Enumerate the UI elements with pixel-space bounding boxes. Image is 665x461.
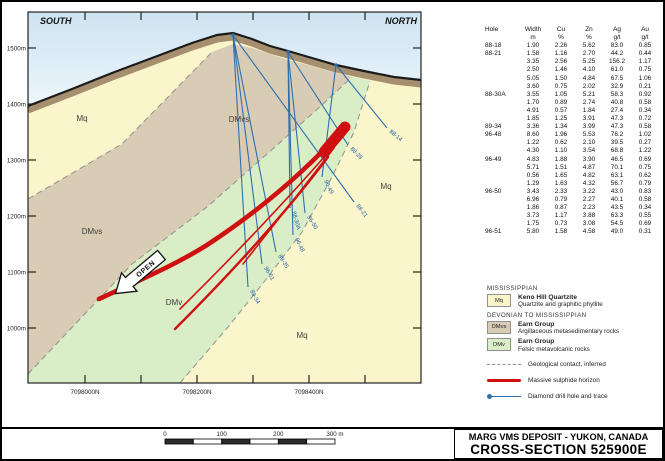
hole-id-cell [485,83,519,91]
value-cell: 70.1 [603,164,631,172]
value-cell: 0.83 [631,188,659,196]
legend-symbol-contact: Geological contact, inferred [487,361,665,369]
value-cell: 4.87 [575,164,603,172]
table-header-cell: g/t [631,34,659,42]
value-cell: 5.80 [519,228,547,236]
hole-id-cell [485,220,519,228]
table-header-cell: Width [519,26,547,34]
value-cell: 0.58 [631,196,659,204]
value-cell: 1.02 [631,131,659,139]
drill-intercept-table: HoleWidthCuZnAgAu m%%g/tg/t 88-181.902.2… [485,26,659,236]
value-cell: 2.23 [575,204,603,212]
value-cell: 4.84 [575,75,603,83]
hole-id-cell: 88-30A [485,91,519,99]
value-cell: 1.06 [631,75,659,83]
hole-id-cell [485,164,519,172]
value-cell: 0.89 [547,99,575,107]
table-row: 4.910.571.8427.40.34 [485,107,659,115]
value-cell: 4.10 [575,66,603,74]
hole-id-cell [485,58,519,66]
value-cell: 3.60 [519,83,547,91]
value-cell: 49.0 [603,228,631,236]
value-cell: 0.34 [631,204,659,212]
value-cell: 76.2 [603,131,631,139]
value-cell: 5.71 [519,164,547,172]
value-cell: 3.36 [519,123,547,131]
table-row: 1.700.892.7440.80.58 [485,99,659,107]
legend-symbol-sulphide: Massive sulphide horizon [487,377,665,385]
value-cell: 1.70 [519,99,547,107]
hole-id-cell: 88-18 [485,42,519,50]
value-cell: 83.0 [603,42,631,50]
hole-id-cell: 89-34 [485,123,519,131]
value-cell: 67.5 [603,75,631,83]
value-cell: 47.3 [603,115,631,123]
hole-id-cell [485,204,519,212]
elevation-label: 1000m [7,325,26,332]
value-cell: 8.60 [519,131,547,139]
scale-bar-label: 100 [217,431,228,438]
value-cell: 44.2 [603,50,631,58]
table-row: 88-211.581.162.7044.20.44 [485,50,659,58]
value-cell: 4.32 [575,180,603,188]
value-cell: 40.1 [603,196,631,204]
scale-bar-label: 300 m [326,431,343,438]
table-row: 88-181.902.265.6283.00.85 [485,42,659,50]
elevation-label: 1100m [7,269,26,276]
mq-swatch: Mq [487,294,511,307]
value-cell: 4.58 [575,228,603,236]
value-cell: 0.58 [631,123,659,131]
value-cell: 1.10 [547,147,575,155]
scale-bar-segment [250,439,278,444]
unit-label: DMv [166,298,182,307]
table-row: 96-503.432.333.2243.00.83 [485,188,659,196]
table-header-cell: Zn [575,26,603,34]
value-cell: 1.63 [547,180,575,188]
compass-north-label: NORTH [385,16,417,26]
value-cell: 1.17 [547,212,575,220]
value-cell: 5.62 [575,42,603,50]
value-cell: 0.72 [631,115,659,123]
value-cell: 1.17 [631,58,659,66]
legend-symbol-label: Geological contact, inferred [528,361,606,368]
table-row: 3.731.173.8863.30.55 [485,212,659,220]
value-cell: 0.69 [631,220,659,228]
value-cell: 3.91 [575,115,603,123]
elevation-label: 1400m [7,101,26,108]
hole-id-cell [485,139,519,147]
scale-bar-segment [307,439,335,444]
value-cell: 0.79 [631,180,659,188]
hole-id-cell: 96-50 [485,188,519,196]
value-cell: 1.65 [547,172,575,180]
hole-id-cell [485,66,519,74]
value-cell: 3.88 [575,212,603,220]
hole-id-cell [485,180,519,188]
table-header-cell: Ag [603,26,631,34]
table-header-cell: Hole [485,26,519,34]
scale-bar-segment [278,439,306,444]
value-cell: 68.8 [603,147,631,155]
legend-item-mq: Mq Keno Hill Quartzite Quartzite and gra… [487,294,665,309]
legend-unit-name: Earn Group [518,321,619,328]
value-cell: 5.21 [575,91,603,99]
value-cell: 3.99 [575,123,603,131]
table-row: 1.860.872.2343.50.34 [485,204,659,212]
legend-item-dmv: DMv Earn Group Felsic metavolcanic rocks [487,338,665,353]
table-row: 1.220.622.1039.50.27 [485,139,659,147]
hole-id-cell: 96-48 [485,131,519,139]
value-cell: 2.33 [547,188,575,196]
value-cell: 2.27 [575,196,603,204]
value-cell: 3.22 [575,188,603,196]
legend-unit-desc: Argillaceous metasedimentary rocks [518,328,619,335]
value-cell: 0.56 [519,172,547,180]
northing-label: 7098000N [70,389,100,396]
value-cell: 0.62 [631,172,659,180]
value-cell: 5.25 [575,58,603,66]
dmv-swatch: DMv [487,338,511,351]
value-cell: 0.87 [547,204,575,212]
drill-collar [286,50,290,54]
table-row: 96-488.601.965.5376.21.02 [485,131,659,139]
value-cell: 2.56 [547,58,575,66]
value-cell: 4.83 [519,156,547,164]
value-cell: 0.55 [631,212,659,220]
value-cell: 0.73 [547,220,575,228]
table-row: 88-30A3.551.055.2158.30.92 [485,91,659,99]
table-row: 3.600.752.0232.90.21 [485,83,659,91]
table-header-cell [485,34,519,42]
table-row: 96-494.831.883.9046.50.69 [485,156,659,164]
value-cell: 1.22 [519,139,547,147]
dashed-contact-sample [487,364,521,365]
figure-title: CROSS-SECTION 525900E [470,443,647,457]
table-row: 5.711.514.8770.10.75 [485,164,659,172]
value-cell: 0.92 [631,91,659,99]
dmvs-swatch: DMvs [487,321,511,334]
hole-id-cell: 96-49 [485,156,519,164]
scale-bar-segment [165,439,193,444]
drill-trace-sample [491,396,521,397]
value-cell: 2.10 [575,139,603,147]
value-cell: 2.02 [575,83,603,91]
value-cell: 1.85 [519,115,547,123]
legend-unit-name: Keno Hill Quartzite [518,294,603,301]
unit-label: Mq [296,331,307,340]
value-cell: 47.3 [603,123,631,131]
value-cell: 58.3 [603,91,631,99]
table-row: 89-343.361.343.9947.30.58 [485,123,659,131]
table-row: 2.501.464.1061.00.75 [485,66,659,74]
value-cell: 1.75 [519,220,547,228]
table-row: 3.352.565.25156.21.17 [485,58,659,66]
hole-id-cell: 88-21 [485,50,519,58]
value-cell: 0.21 [631,83,659,91]
legend-group-title: DEVONIAN TO MISSISSIPPIAN [487,312,665,319]
value-cell: 43.5 [603,204,631,212]
hole-id-cell [485,212,519,220]
scale-bar-segment [222,439,250,444]
value-cell: 2.70 [575,50,603,58]
table-row: 0.561.654.8263.10.62 [485,172,659,180]
value-cell: 0.57 [547,107,575,115]
legend: MISSISSIPPIAN Mq Keno Hill Quartzite Qua… [485,282,665,401]
table-header-cell: Au [631,26,659,34]
unit-label: Mq [76,114,87,123]
value-cell: 3.08 [575,220,603,228]
compass-south-label: SOUTH [40,16,72,26]
value-cell: 3.43 [519,188,547,196]
value-cell: 156.2 [603,58,631,66]
value-cell: 61.0 [603,66,631,74]
value-cell: 54.5 [603,220,631,228]
value-cell: 0.27 [631,139,659,147]
value-cell: 2.50 [519,66,547,74]
table-row: 5.051.504.8467.51.06 [485,75,659,83]
value-cell: 1.88 [547,156,575,164]
legend-unit-name: Earn Group [518,338,590,345]
value-cell: 0.31 [631,228,659,236]
value-cell: 1.05 [547,91,575,99]
northing-label: 7098400N [294,389,324,396]
hole-id-cell [485,107,519,115]
table-row: 4.301.103.5468.81.22 [485,147,659,155]
value-cell: 0.75 [631,164,659,172]
value-cell: 1.16 [547,50,575,58]
value-cell: 1.84 [575,107,603,115]
hole-id-cell [485,75,519,83]
value-cell: 39.5 [603,139,631,147]
table-row: 1.851.253.9147.30.72 [485,115,659,123]
value-cell: 1.58 [547,228,575,236]
value-cell: 0.34 [631,107,659,115]
value-cell: 1.50 [547,75,575,83]
value-cell: 40.8 [603,99,631,107]
value-cell: 3.73 [519,212,547,220]
elevation-label: 1200m [7,213,26,220]
table-header-cell: g/t [603,34,631,42]
unit-label: DMvs [82,227,102,236]
value-cell: 1.22 [631,147,659,155]
value-cell: 1.51 [547,164,575,172]
value-cell: 1.96 [547,131,575,139]
table-row: 6.960.792.2740.10.58 [485,196,659,204]
value-cell: 1.58 [519,50,547,58]
value-cell: 3.35 [519,58,547,66]
unit-label: Mq [380,182,391,191]
hole-id-cell: 96-51 [485,228,519,236]
value-cell: 4.30 [519,147,547,155]
value-cell: 32.9 [603,83,631,91]
drill-collar [231,33,235,37]
hole-id-cell [485,172,519,180]
legend-unit-desc: Quartzite and graphitic phyllite [518,301,603,308]
value-cell: 0.62 [547,139,575,147]
value-cell: 0.69 [631,156,659,164]
table-header-cell: % [575,34,603,42]
table-row: 96-515.801.584.5849.00.31 [485,228,659,236]
elevation-label: 1500m [7,45,26,52]
legend-unit-desc: Felsic metavolcanic rocks [518,346,590,353]
value-cell: 0.85 [631,42,659,50]
value-cell: 1.86 [519,204,547,212]
value-cell: 43.0 [603,188,631,196]
table-header-cell: % [547,34,575,42]
sulphide-line-sample [487,379,521,382]
legend-symbol-label: Massive sulphide horizon [528,377,600,384]
hole-id-cell [485,147,519,155]
table-header-cell: Cu [547,26,575,34]
scale-bar: 0100200300 m [163,431,343,444]
value-cell: 6.96 [519,196,547,204]
value-cell: 3.54 [575,147,603,155]
legend-symbol-label: Diamond drill hole and trace [528,393,608,400]
table-header: HoleWidthCuZnAgAu m%%g/tg/t [485,26,659,42]
hole-id-cell [485,99,519,107]
value-cell: 4.82 [575,172,603,180]
value-cell: 0.44 [631,50,659,58]
value-cell: 2.26 [547,42,575,50]
scale-bar-segment [193,439,221,444]
legend-symbol-drill: Diamond drill hole and trace [487,393,665,401]
value-cell: 1.29 [519,180,547,188]
value-cell: 5.05 [519,75,547,83]
title-block: MARG VMS DEPOSIT - YUKON, CANADA CROSS-S… [454,429,663,459]
hole-id-cell [485,115,519,123]
figure-subtitle: MARG VMS DEPOSIT - YUKON, CANADA [469,432,649,443]
value-cell: 1.90 [519,42,547,50]
northing-label: 7098200N [182,389,212,396]
cross-section-figure: 89-3496-5189-3588-2188-30A96-4896-5088-2… [0,0,665,461]
scale-bar-label: 200 [273,431,284,438]
value-cell: 3.55 [519,91,547,99]
value-cell: 1.25 [547,115,575,123]
unit-label: DMvs [229,115,249,124]
value-cell: 2.74 [575,99,603,107]
value-cell: 0.75 [547,83,575,91]
value-cell: 3.90 [575,156,603,164]
value-cell: 5.53 [575,131,603,139]
elevation-label: 1300m [7,157,26,164]
value-cell: 63.3 [603,212,631,220]
value-cell: 1.46 [547,66,575,74]
value-cell: 56.7 [603,180,631,188]
value-cell: 4.91 [519,107,547,115]
scale-bar-label: 0 [163,431,167,438]
drill-collar [334,63,338,67]
value-cell: 0.79 [547,196,575,204]
table-row: 1.291.634.3256.70.79 [485,180,659,188]
value-cell: 1.34 [547,123,575,131]
table-row: 1.750.733.0854.50.69 [485,220,659,228]
value-cell: 0.75 [631,66,659,74]
value-cell: 63.1 [603,172,631,180]
value-cell: 27.4 [603,107,631,115]
table-header-cell: m [519,34,547,42]
value-cell: 0.58 [631,99,659,107]
legend-group-title: MISSISSIPPIAN [487,285,665,292]
value-cell: 46.5 [603,156,631,164]
hole-id-cell [485,196,519,204]
legend-item-dmvs: DMvs Earn Group Argillaceous metasedimen… [487,321,665,336]
